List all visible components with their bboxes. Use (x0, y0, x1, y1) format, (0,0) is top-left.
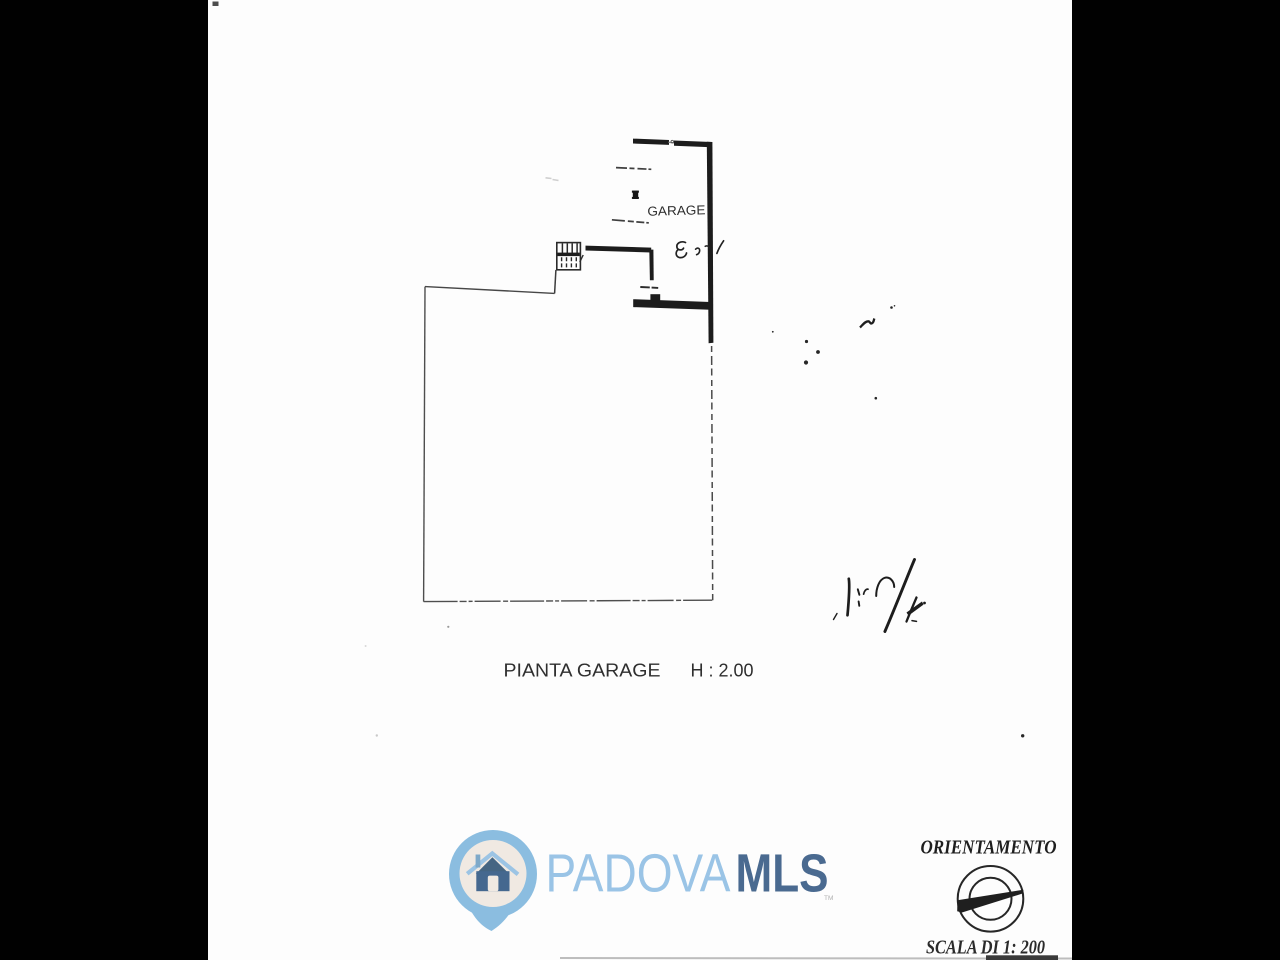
svg-text:TM: TM (824, 895, 833, 902)
svg-text:PADOVA: PADOVA (546, 844, 731, 904)
svg-text:H : 2.00: H : 2.00 (691, 660, 754, 680)
svg-text:PIANTA GARAGE: PIANTA GARAGE (504, 660, 661, 680)
svg-text:GARAGE: GARAGE (647, 202, 706, 219)
svg-text:ORIENTAMENTO: ORIENTAMENTO (921, 836, 1057, 858)
svg-text:MLS: MLS (736, 844, 829, 904)
